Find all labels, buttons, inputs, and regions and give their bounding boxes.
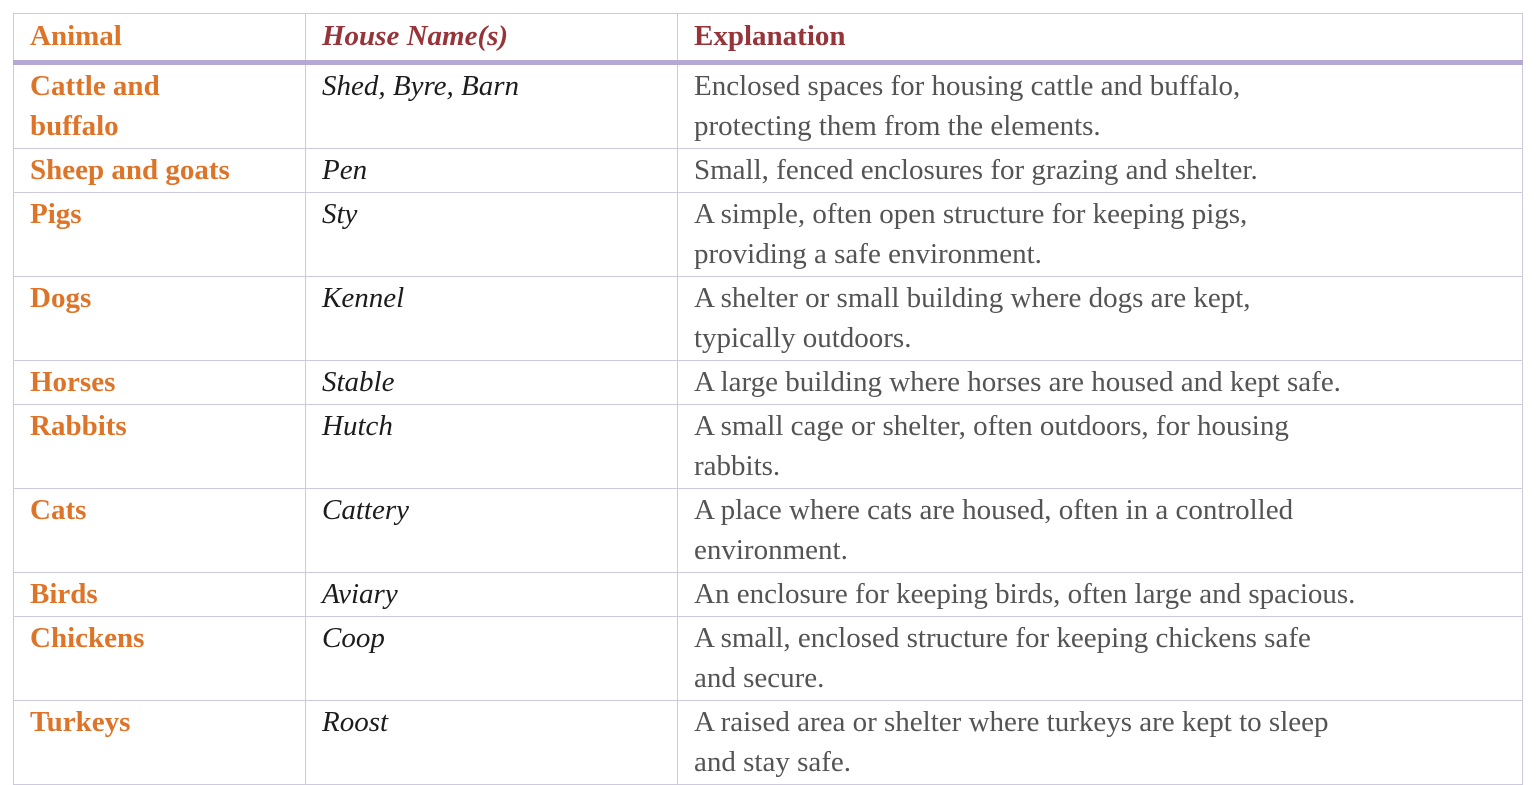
explanation-text: A shelter or small building where dogs a… <box>694 278 1510 358</box>
explanation-text: Enclosed spaces for housing cattle and b… <box>694 66 1510 146</box>
explanation-text: A raised area or shelter where turkeys a… <box>694 702 1510 782</box>
explanation-cell: A simple, often open structure for keepi… <box>678 193 1523 277</box>
animal-cell: Chickens <box>14 617 306 701</box>
animal-cell: Cattle and buffalo <box>14 63 306 149</box>
house-name: Cattery <box>322 490 665 530</box>
column-header-animal: Animal <box>14 14 306 63</box>
house-name: Pen <box>322 150 665 190</box>
house-name: Kennel <box>322 278 665 318</box>
table-row: Sheep and goats Pen Small, fenced enclos… <box>14 149 1523 193</box>
explanation-cell: Small, fenced enclosures for grazing and… <box>678 149 1523 193</box>
explanation-cell: A shelter or small building where dogs a… <box>678 277 1523 361</box>
house-cell: Sty <box>306 193 678 277</box>
explanation-cell: A large building where horses are housed… <box>678 361 1523 405</box>
house-name: Roost <box>322 702 665 742</box>
animal-cell: Turkeys <box>14 701 306 785</box>
table-row: Pigs Sty A simple, often open structure … <box>14 193 1523 277</box>
column-header-explanation: Explanation <box>678 14 1523 63</box>
table-row: Turkeys Roost A raised area or shelter w… <box>14 701 1523 785</box>
table-row: Rabbits Hutch A small cage or shelter, o… <box>14 405 1523 489</box>
animal-cell: Horses <box>14 361 306 405</box>
house-name: Aviary <box>322 574 665 614</box>
explanation-text: An enclosure for keeping birds, often la… <box>694 574 1510 614</box>
explanation-cell: A raised area or shelter where turkeys a… <box>678 701 1523 785</box>
table-row: Cats Cattery A place where cats are hous… <box>14 489 1523 573</box>
animal-name: Sheep and goats <box>30 150 293 190</box>
animal-name: Turkeys <box>30 702 293 742</box>
explanation-text: A large building where horses are housed… <box>694 362 1510 402</box>
explanation-cell: A small cage or shelter, often outdoors,… <box>678 405 1523 489</box>
house-name: Coop <box>322 618 665 658</box>
house-cell: Shed, Byre, Barn <box>306 63 678 149</box>
explanation-cell: A place where cats are housed, often in … <box>678 489 1523 573</box>
table-row: Dogs Kennel A shelter or small building … <box>14 277 1523 361</box>
explanation-text: A small, enclosed structure for keeping … <box>694 618 1510 698</box>
animal-name: Birds <box>30 574 293 614</box>
animal-cell: Sheep and goats <box>14 149 306 193</box>
house-cell: Aviary <box>306 573 678 617</box>
explanation-cell: Enclosed spaces for housing cattle and b… <box>678 63 1523 149</box>
animal-cell: Dogs <box>14 277 306 361</box>
house-cell: Kennel <box>306 277 678 361</box>
house-cell: Roost <box>306 701 678 785</box>
house-name: Shed, Byre, Barn <box>322 66 665 106</box>
animal-cell: Pigs <box>14 193 306 277</box>
animal-cell: Rabbits <box>14 405 306 489</box>
animal-name: Cats <box>30 490 293 530</box>
animal-cell: Birds <box>14 573 306 617</box>
house-cell: Hutch <box>306 405 678 489</box>
explanation-text: A simple, often open structure for keepi… <box>694 194 1510 274</box>
column-header-house-names: House Name(s) <box>306 14 678 63</box>
explanation-cell: An enclosure for keeping birds, often la… <box>678 573 1523 617</box>
explanation-cell: A small, enclosed structure for keeping … <box>678 617 1523 701</box>
header-row: Animal House Name(s) Explanation <box>14 14 1523 63</box>
house-name: Sty <box>322 194 665 234</box>
house-name: Hutch <box>322 406 665 446</box>
explanation-text: A place where cats are housed, often in … <box>694 490 1510 570</box>
house-cell: Stable <box>306 361 678 405</box>
animal-name: Horses <box>30 362 293 402</box>
explanation-text: Small, fenced enclosures for grazing and… <box>694 150 1510 190</box>
house-name: Stable <box>322 362 665 402</box>
animal-name: Rabbits <box>30 406 293 446</box>
house-cell: Pen <box>306 149 678 193</box>
table-row: Cattle and buffalo Shed, Byre, Barn Encl… <box>14 63 1523 149</box>
house-cell: Coop <box>306 617 678 701</box>
table-row: Horses Stable A large building where hor… <box>14 361 1523 405</box>
explanation-text: A small cage or shelter, often outdoors,… <box>694 406 1510 486</box>
table-row: Birds Aviary An enclosure for keeping bi… <box>14 573 1523 617</box>
animal-name: Chickens <box>30 618 293 658</box>
animal-name: Cattle and buffalo <box>30 66 293 146</box>
animal-name: Pigs <box>30 194 293 234</box>
animal-cell: Cats <box>14 489 306 573</box>
animal-name: Dogs <box>30 278 293 318</box>
table-row: Chickens Coop A small, enclosed structur… <box>14 617 1523 701</box>
animal-houses-table: Animal House Name(s) Explanation Cattle … <box>13 13 1523 785</box>
house-cell: Cattery <box>306 489 678 573</box>
